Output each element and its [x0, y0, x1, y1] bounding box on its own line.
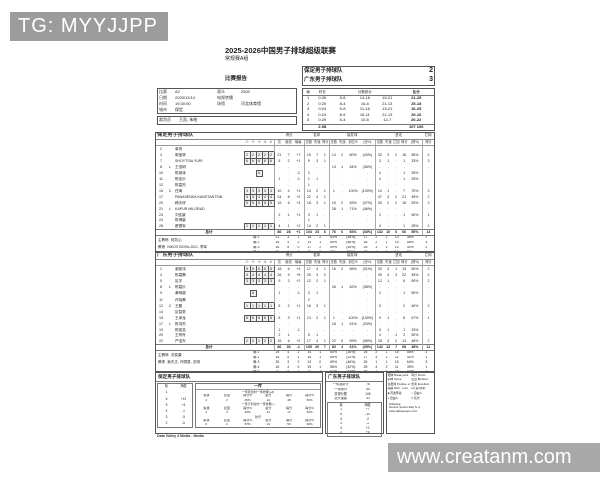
cell — [303, 124, 313, 130]
team-a-summary-title: 保定男子排球队 — [156, 373, 322, 382]
bottom-summary-section: 保定男子排球队 轮净胜1.6+125+44-13-52-5 一传 一传到位时一传… — [155, 372, 435, 434]
team-a-set-breakdown: 主教练 何凯心 教练 NIKOS BOSILJCIC, 李军 局 1213116… — [156, 235, 434, 252]
table-row: 2:08107 106 — [303, 124, 434, 130]
cell: 净胜 — [175, 384, 193, 391]
team-b-summary-block: 广东男子排球队 一传及防守76一传得分55总得分数106总失误数33 轮净胜1+… — [325, 372, 384, 434]
team-a-reception-box: 一传 一传到位时一传效果(+#) 失误拦回得分%总分得分得分%2245%1448… — [195, 383, 321, 428]
cell: 14 — [258, 423, 279, 427]
team-b-summary-table: 一传及防守76一传得分55总得分数106总失误数33 — [327, 383, 382, 401]
cell: 2 — [328, 431, 355, 436]
team-b-rotation-table: 轮净胜1+76-105-24-13+22+5 — [327, 402, 382, 436]
table-row: 保定男子排球队2 — [303, 67, 434, 76]
assistant-label: 教练 — [158, 245, 165, 249]
cell — [240, 107, 296, 113]
cell: 142 — [375, 344, 384, 350]
team-b-coaches: 主教练 洪俊康 教练 吴天文, 许顺泉, 志明 — [156, 351, 241, 372]
cell: 2 — [369, 67, 435, 76]
table-row: 2-5 — [158, 421, 193, 428]
cell: 105 — [304, 344, 313, 350]
cell: 轮 — [158, 384, 176, 391]
cell — [331, 124, 353, 130]
cell: 33 — [354, 397, 381, 402]
coach-name: 洪俊康 — [171, 353, 182, 357]
cell: +5 — [354, 431, 381, 436]
cell: 2 — [158, 421, 176, 428]
team-b-summary-title: 广东男子排球队 — [326, 373, 383, 382]
team-b-set-breakdown: 主教练 洪俊康 教练 吴天文, 许顺泉, 志明 局 1254214164%(36… — [156, 350, 434, 372]
cell: 2 — [217, 423, 238, 427]
cell — [216, 107, 240, 113]
cell: 30% — [299, 423, 320, 427]
datavolley-footer: Data Volley 4 Media - Media — [157, 434, 204, 438]
coach-label: 主教练 — [158, 238, 169, 242]
coach-name: 何凯心 — [171, 238, 182, 242]
match-info: 比赛A2观众2500日期2025/12/14电视转播时间19:30:00场馆河北… — [157, 88, 297, 114]
software-url: www.dataproject.com — [389, 410, 433, 414]
cell: 总失误数 — [327, 397, 354, 402]
cell: 保定 — [174, 107, 216, 113]
table-row: 轮净胜 — [158, 384, 193, 391]
table-row: 6257%145030% — [196, 423, 320, 427]
assistant-names: 吴天文, 许顺泉, 志明 — [167, 360, 200, 364]
cell: -5 — [175, 421, 193, 428]
legend-box: 粗体 Break point得分 Points斜体 Serve拦回 Blocke… — [386, 372, 435, 434]
cell: 广东男子排球队 — [303, 76, 369, 85]
telegram-watermark: TG: MYYJJPP — [10, 12, 168, 41]
team-a-stats-table: 保定男子排球队 得分 发球 接发球 进攻 拦网 ①②③④⑤总破攻输赢总数失误得分… — [155, 132, 435, 252]
cell: 2:08 — [313, 124, 331, 130]
team-a-coaches: 主教练 何凯心 教练 NIKOS BOSILJCIC, 李军 — [156, 236, 241, 252]
cell: 裁判员 — [158, 117, 178, 124]
table-row: 城市保定 — [158, 107, 296, 113]
cell: 城市 — [158, 107, 174, 113]
set-scores-table: 局 时长 分数统计 比分 10:265-814-1619-2121-2520:2… — [302, 88, 435, 131]
site-watermark: www.creatanm.com — [388, 443, 600, 472]
table-row: 总失误数33 — [327, 397, 382, 402]
assistant-label: 教练 — [158, 360, 165, 364]
cell: 50 — [279, 423, 300, 427]
assistant-names: NIKOS BOSILJCIC, 李军 — [167, 245, 207, 249]
cell — [354, 124, 376, 130]
team-a-rotation-table: 轮净胜1.6+125+44-13-52-5 — [157, 383, 193, 428]
report-label: 比赛报告 — [225, 74, 247, 82]
coach-label: 主教练 — [158, 353, 169, 357]
table-row: 广东男子排球队3 — [303, 76, 434, 85]
cell: 保定男子排球队 — [303, 67, 369, 76]
page-subtitle: 常规赛A组 — [225, 55, 248, 62]
team-a-summary-block: 保定男子排球队 轮净胜1.6+125+44-13-52-5 一传 一传到位时一传… — [155, 372, 323, 434]
scoreboard: 保定男子排球队2广东男子排球队3 — [302, 66, 435, 86]
cell: 132 — [375, 229, 384, 235]
team-b-stats-table: 广东男子排球队 得分 发球 接发球 进攻 拦网 ①②③④⑤总破攻输赢总数失误得分… — [155, 252, 435, 372]
cell: 103 — [304, 229, 313, 235]
cell: 王凯, 朱皓 — [178, 117, 296, 124]
table-row: 裁判员王凯, 朱皓 — [158, 117, 296, 124]
table-row: 2+5 — [328, 431, 382, 436]
cell — [376, 124, 398, 130]
cell: 107 106 — [398, 124, 434, 130]
referee-row: 裁判员王凯, 朱皓 — [157, 116, 297, 125]
software-credit: Software Genius Sports Italy S.r.l. www.… — [387, 401, 434, 415]
cell: 3 — [369, 76, 435, 85]
cell: 57% — [237, 423, 258, 427]
cell: 6 — [196, 423, 217, 427]
